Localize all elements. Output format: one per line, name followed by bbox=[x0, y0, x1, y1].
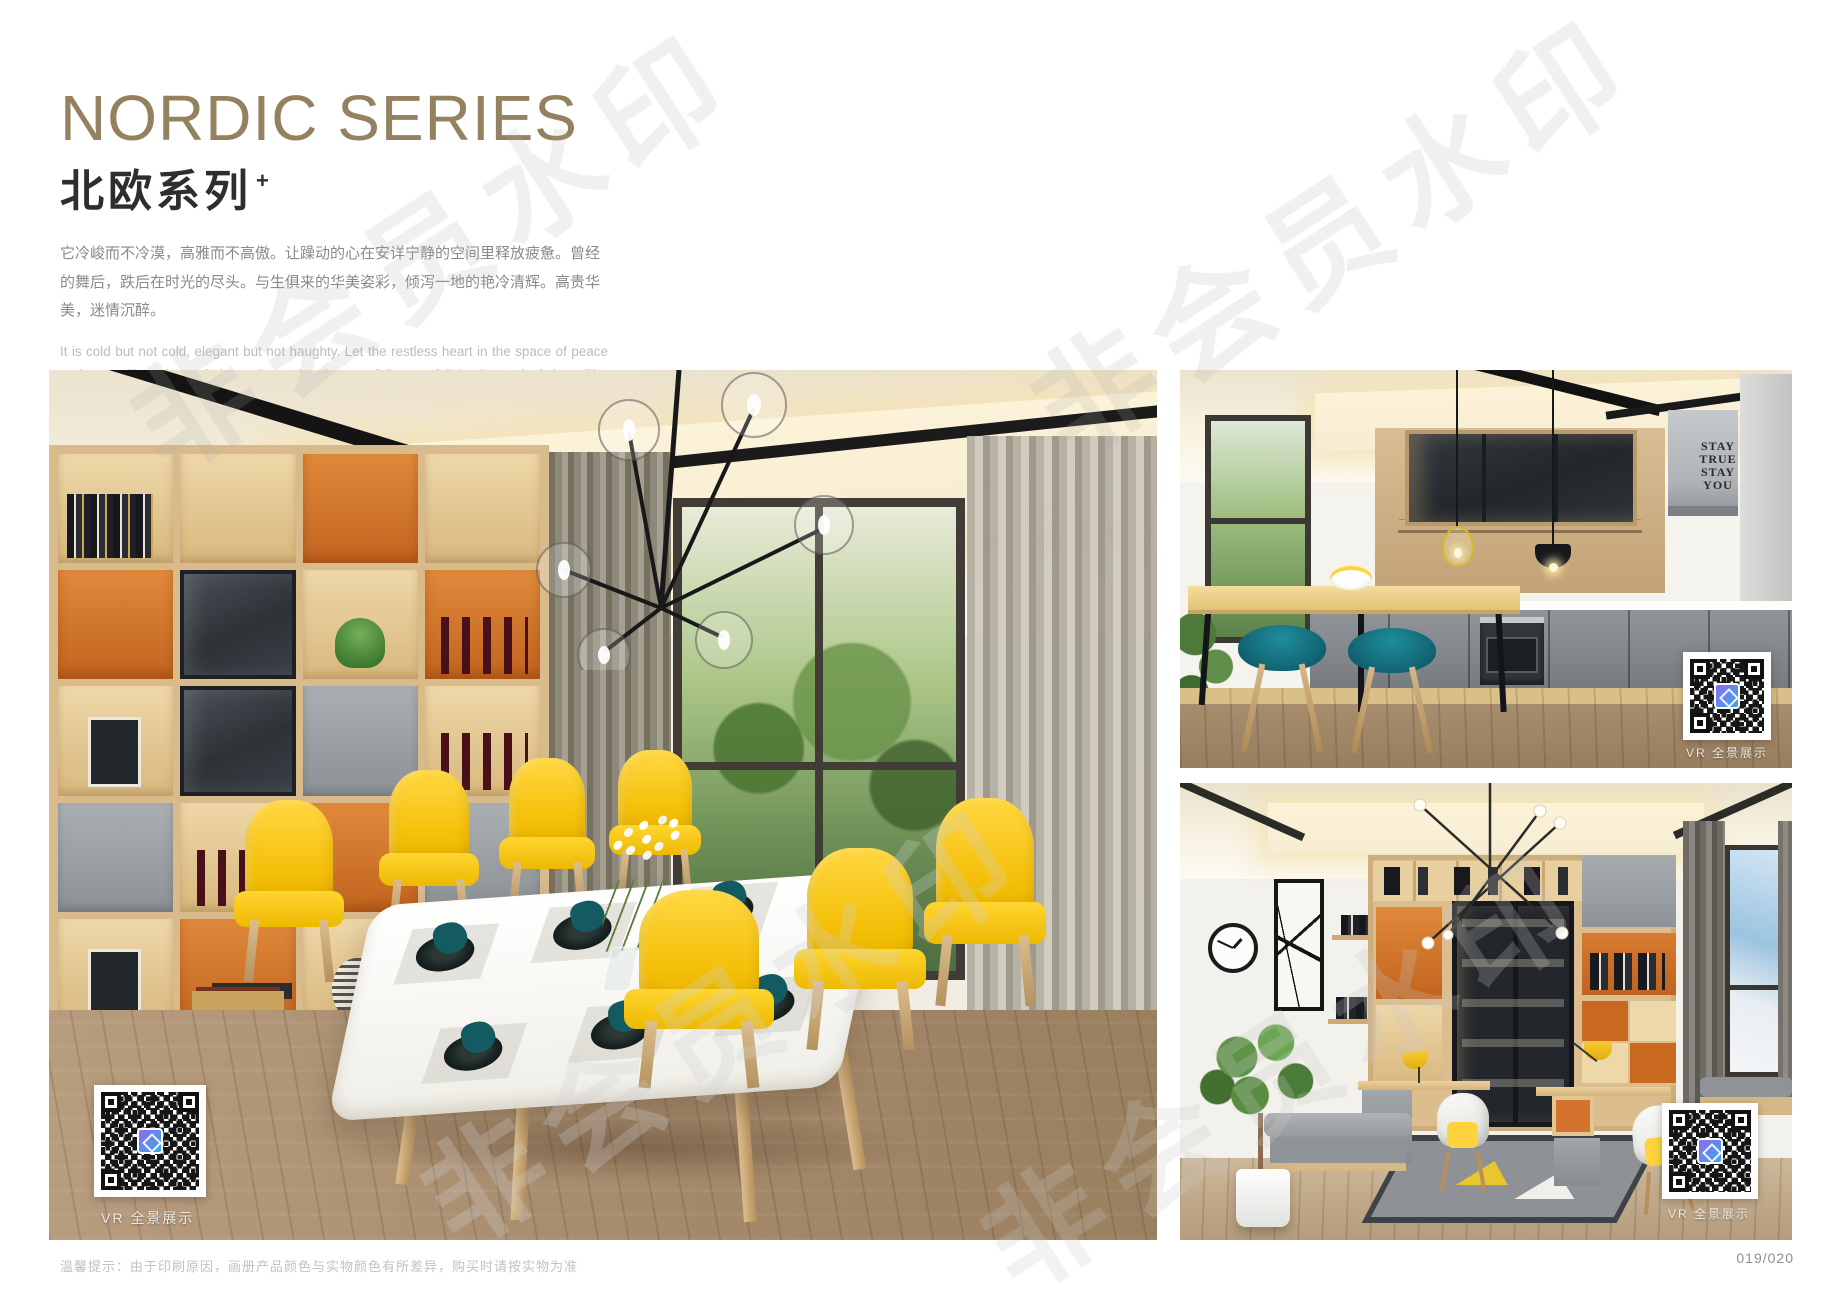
stool-seat bbox=[1348, 628, 1436, 673]
series-title-en: NORDIC SERIES bbox=[60, 86, 620, 150]
desk-panel bbox=[1554, 1138, 1600, 1186]
shelf-cubby bbox=[58, 686, 173, 795]
wall-quote-line: STAY bbox=[1696, 466, 1740, 479]
desk bbox=[1358, 1081, 1490, 1090]
floor-shadow bbox=[339, 1112, 919, 1182]
pendant-cord bbox=[1552, 370, 1554, 546]
qr-pattern bbox=[1690, 659, 1764, 733]
shelf-cubby bbox=[425, 570, 540, 679]
chair-leg bbox=[244, 920, 259, 982]
series-title-plus: + bbox=[256, 168, 269, 193]
stool-leg bbox=[1298, 664, 1323, 753]
cage-pendant-light bbox=[1442, 526, 1474, 566]
chair-leg bbox=[806, 981, 824, 1050]
shelf-cubby bbox=[1582, 933, 1676, 995]
shelf-cubby bbox=[180, 454, 295, 563]
curtain bbox=[1683, 821, 1725, 1105]
abstract-art-frame bbox=[1274, 879, 1324, 1011]
wall-quote-line: YOU bbox=[1696, 479, 1740, 492]
shelf-glass-door bbox=[180, 570, 295, 679]
desk-cubby bbox=[1552, 1096, 1594, 1136]
plant-leaves bbox=[1198, 1021, 1328, 1141]
qr-finder bbox=[101, 1092, 121, 1112]
chair-leg bbox=[1018, 935, 1035, 1006]
chair-pillow bbox=[1447, 1122, 1478, 1147]
bench-base bbox=[1270, 1137, 1406, 1171]
qr-pattern bbox=[101, 1092, 199, 1190]
chair-leg bbox=[935, 935, 952, 1006]
chair-back bbox=[936, 798, 1034, 919]
stool-leg bbox=[1351, 666, 1375, 753]
place-setting bbox=[440, 1032, 506, 1073]
vr-panorama-label: VR 全景展示 bbox=[1686, 744, 1768, 761]
qr-pattern bbox=[1669, 1110, 1751, 1192]
study-room-photo: VR 全景展示 bbox=[1180, 783, 1792, 1240]
qr-code bbox=[1662, 1103, 1758, 1199]
bar-stool bbox=[1348, 628, 1436, 753]
kitchen-photo: STAY TRUE STAY YOU VR 全景展示 bbox=[1180, 370, 1792, 768]
chair-leg bbox=[1440, 1152, 1450, 1191]
shelf-cubby bbox=[1376, 1005, 1442, 1085]
chair-back bbox=[807, 848, 913, 965]
series-title-zh-row: 北欧系列+ bbox=[60, 168, 620, 214]
seat-cushion bbox=[1700, 1077, 1792, 1097]
chair-leg bbox=[741, 1020, 760, 1088]
pendant-cord bbox=[1456, 370, 1458, 528]
cube-logo-icon bbox=[1714, 683, 1740, 709]
description-zh: 它冷峻而不冷漠，高雅而不高傲。让躁动的心在安详宁静的空间里释放疲惫。曾经的舞后，… bbox=[60, 240, 600, 326]
built-in-oven bbox=[1480, 617, 1544, 685]
plant-pot bbox=[1236, 1169, 1290, 1227]
wall-clock bbox=[1208, 923, 1258, 973]
dining-chair bbox=[624, 890, 774, 1088]
stool-leg bbox=[1241, 664, 1266, 753]
place-setting bbox=[412, 933, 478, 974]
chair-back bbox=[245, 800, 333, 906]
qr-finder bbox=[1744, 659, 1764, 679]
vr-panorama-label: VR 全景展示 bbox=[1668, 1205, 1750, 1222]
qr-finder bbox=[1690, 659, 1710, 679]
qr-finder bbox=[1669, 1110, 1689, 1130]
shelf-cabinet-door bbox=[58, 803, 173, 912]
qr-finder bbox=[179, 1092, 199, 1112]
wall-quote: STAY TRUE STAY YOU bbox=[1696, 440, 1740, 492]
dining-chair bbox=[924, 798, 1046, 1006]
qr-code bbox=[1683, 652, 1771, 740]
wall-quote-line: STAY bbox=[1696, 440, 1740, 453]
sputnik-chandelier bbox=[529, 370, 889, 670]
chair-leg bbox=[896, 981, 914, 1050]
cube-logo-icon bbox=[137, 1128, 163, 1154]
shelf-cubby bbox=[425, 454, 540, 563]
desk-chair bbox=[1432, 1093, 1494, 1191]
fruit-bowl bbox=[1330, 566, 1372, 590]
qr-finder bbox=[101, 1170, 121, 1190]
chair-leg bbox=[319, 920, 334, 982]
chair-leg bbox=[1476, 1152, 1486, 1191]
shelf-cubby bbox=[58, 454, 173, 563]
shelf-cubby bbox=[58, 570, 173, 679]
page-number: 019/020 bbox=[1736, 1250, 1794, 1266]
chair-leg bbox=[639, 1020, 658, 1088]
shelf-cubby bbox=[303, 454, 418, 563]
upper-glass-cabinet bbox=[1405, 430, 1637, 526]
stool-leg bbox=[1409, 666, 1433, 753]
stool-seat bbox=[1238, 625, 1326, 671]
curtain bbox=[1778, 821, 1792, 1105]
qr-finder bbox=[1669, 1172, 1689, 1192]
desk bbox=[1536, 1087, 1670, 1096]
chair-leg bbox=[1644, 1172, 1651, 1215]
footer-disclaimer: 温馨提示：由于印刷原因，画册产品颜色与实物颜色有所差异，购买时请按实物为准 bbox=[60, 1256, 578, 1275]
vr-panorama-label: VR 全景展示 bbox=[101, 1208, 194, 1228]
chair-back bbox=[639, 890, 759, 1005]
chair-back bbox=[509, 758, 586, 850]
sputnik-chandelier bbox=[1390, 783, 1590, 953]
catalog-page: 非会员水印 非会员水印 非会员水印 非会员水印 NORDIC SERIES 北欧… bbox=[0, 0, 1836, 1307]
shelf-cabinet-door bbox=[1582, 855, 1676, 927]
shelf-glass-door bbox=[180, 686, 295, 795]
qr-code bbox=[94, 1085, 206, 1197]
qr-finder bbox=[1690, 713, 1710, 733]
series-title-zh: 北欧系列 bbox=[60, 167, 252, 216]
chair-back bbox=[618, 750, 692, 837]
cube-logo-icon bbox=[1697, 1138, 1723, 1164]
qr-finder bbox=[1731, 1110, 1751, 1130]
shelf-cubby bbox=[303, 570, 418, 679]
dining-chair bbox=[794, 848, 926, 1050]
dining-room-photo: VR 全景展示 bbox=[49, 370, 1157, 1240]
chair-back bbox=[389, 770, 469, 866]
wall-quote-line: TRUE bbox=[1696, 453, 1740, 466]
bar-stool bbox=[1238, 625, 1326, 753]
dining-chair bbox=[234, 800, 344, 982]
